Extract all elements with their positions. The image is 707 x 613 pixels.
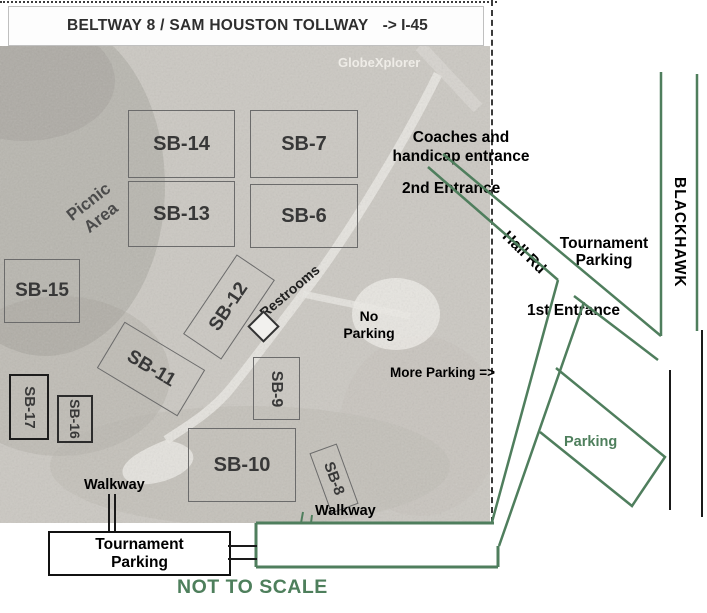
photo-edge-dashed-line [491,0,493,523]
coaches-entrance-line1: Coaches and [386,129,536,148]
field-sb15-label: SB-15 [15,280,69,302]
globexplorer-watermark: GlobeXplorer [338,56,420,71]
field-sb9-label: SB-9 [267,370,285,406]
field-sb6-label: SB-6 [281,205,327,228]
walkway-right-label: Walkway [315,503,376,520]
tournament-map: BELTWAY 8 / SAM HOUSTON TOLLWAY -> I-45 … [0,0,707,613]
no-parking-line2: Parking [330,325,408,342]
field-sb10-label: SB-10 [214,454,271,477]
field-sb9: SB-9 [253,357,300,420]
hall-rd-label: Hall Rd [498,228,549,278]
highway-banner-road: BELTWAY 8 / SAM HOUSTON TOLLWAY [67,17,369,35]
field-sb14: SB-14 [128,110,235,178]
field-sb6: SB-6 [250,184,358,248]
field-sb14-label: SB-14 [153,133,210,156]
field-sb10: SB-10 [188,428,296,502]
tournament-parking-box-left-line2: Parking [111,554,168,572]
field-sb7: SB-7 [250,110,358,178]
tournament-parking-box-bottom-line1: Tournament [258,526,494,543]
field-sb17-label: SB-17 [21,386,38,429]
field-sb7-label: SB-7 [281,133,327,156]
tournament-parking-right-line1: Tournament [556,236,652,253]
tournament-parking-box-left: Tournament Parking [48,531,231,576]
tournament-parking-box-left-line1: Tournament [95,536,183,554]
no-parking-label: No Parking [330,308,408,342]
highway-banner: BELTWAY 8 / SAM HOUSTON TOLLWAY -> I-45 [8,6,484,46]
tournament-parking-right-label: Tournament Parking [556,236,652,269]
second-entrance-label: 2nd Entrance [402,180,500,198]
field-sb17: SB-17 [9,374,49,440]
more-parking-label: More Parking => [390,365,495,381]
field-sb15: SB-15 [4,259,80,323]
field-sb16-label: SB-16 [67,399,83,439]
first-entrance-road-right-edge [499,302,584,546]
blackhawk-road-label: BLACKHAWK [670,177,688,288]
field-sb13-label: SB-13 [153,203,210,226]
top-dotted-line [0,1,497,3]
no-parking-line1: No [330,308,408,325]
tournament-parking-box-bottom-line2: Parking [258,543,494,560]
highway-banner-direction: -> I-45 [383,17,428,35]
tournament-parking-box-bottom-label: Tournament Parking [258,526,494,559]
coaches-entrance-line2: handicap entrance [386,148,536,167]
walkway-left-label: Walkway [84,477,145,494]
not-to-scale-label: NOT TO SCALE [177,576,328,598]
field-sb16: SB-16 [57,395,93,443]
tournament-parking-right-line2: Parking [556,253,652,270]
first-entrance-label: 1st Entrance [527,302,620,320]
field-sb11-label: SB-11 [123,346,180,392]
coaches-entrance-label: Coaches and handicap entrance [386,129,536,166]
field-sb8-label: SB-8 [320,460,348,498]
parking-area-label: Parking [564,434,617,451]
